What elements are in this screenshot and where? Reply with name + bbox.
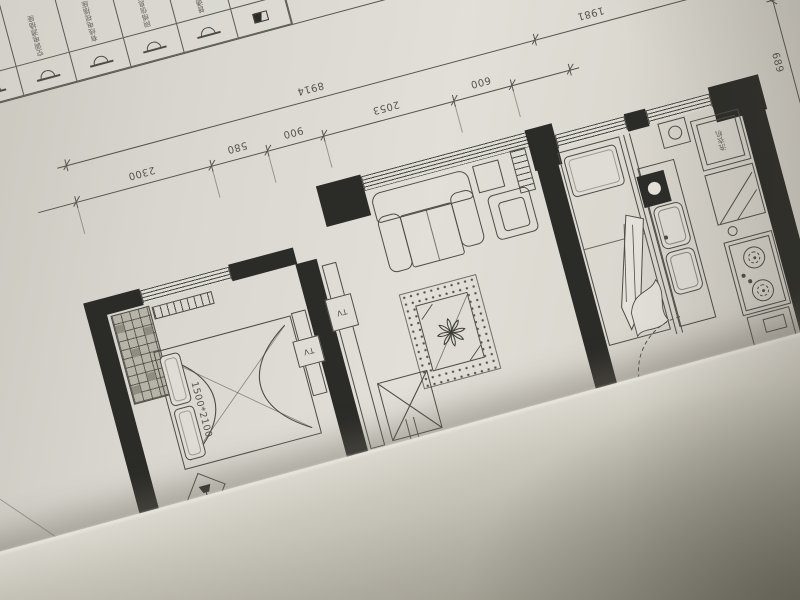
armchair xyxy=(486,186,539,242)
legend-table: 单相两极插座 单相三极插座 空调电源插座 有线电视插座 网络信息插座 普通电源插… xyxy=(0,0,293,125)
dim-tick xyxy=(766,0,778,3)
tile-cell xyxy=(131,385,141,395)
washing-machine-label-wrap: 洗衣机 xyxy=(691,110,750,171)
heater-dial-icon xyxy=(646,180,662,196)
drain-circle-icon xyxy=(727,225,739,237)
legend-label: 有线电视插座 xyxy=(81,0,99,42)
coffee-table xyxy=(415,292,485,372)
photo-of-floor-plan: 单相两极插座 单相三极插座 空调电源插座 有线电视插座 网络信息插座 普通电源插… xyxy=(0,0,800,600)
tile-cell xyxy=(115,324,125,334)
dimension-label-2300: 2300 xyxy=(96,154,187,193)
rug xyxy=(399,274,502,389)
kitchen-appliance-box xyxy=(657,117,691,149)
appliance-dial-icon xyxy=(667,124,684,141)
legend-label: 普通电源插座 xyxy=(188,0,206,14)
socket-symbol-icon xyxy=(92,54,109,66)
armchair-seat xyxy=(497,196,531,232)
side-table xyxy=(472,159,505,193)
legend-label: 网络信息插座 xyxy=(134,0,152,28)
panel-symbol-icon xyxy=(252,10,269,24)
socket-symbol-icon xyxy=(145,39,162,51)
socket-symbol-icon xyxy=(38,68,55,80)
tv-label: TV xyxy=(336,307,349,318)
socket-symbol-icon xyxy=(0,82,1,94)
tv-label: TV xyxy=(302,346,315,357)
tile-cell xyxy=(144,326,154,336)
tile-cell xyxy=(131,348,141,358)
washing-machine-label: 洗衣机 xyxy=(713,129,728,152)
dimension-label-1981: 1981 xyxy=(530,0,650,37)
legend-label: 空调电源插座 xyxy=(27,14,45,56)
wall-bedroom-top-right xyxy=(228,247,297,281)
tile-cell xyxy=(147,372,157,382)
socket-symbol-icon xyxy=(199,25,216,37)
